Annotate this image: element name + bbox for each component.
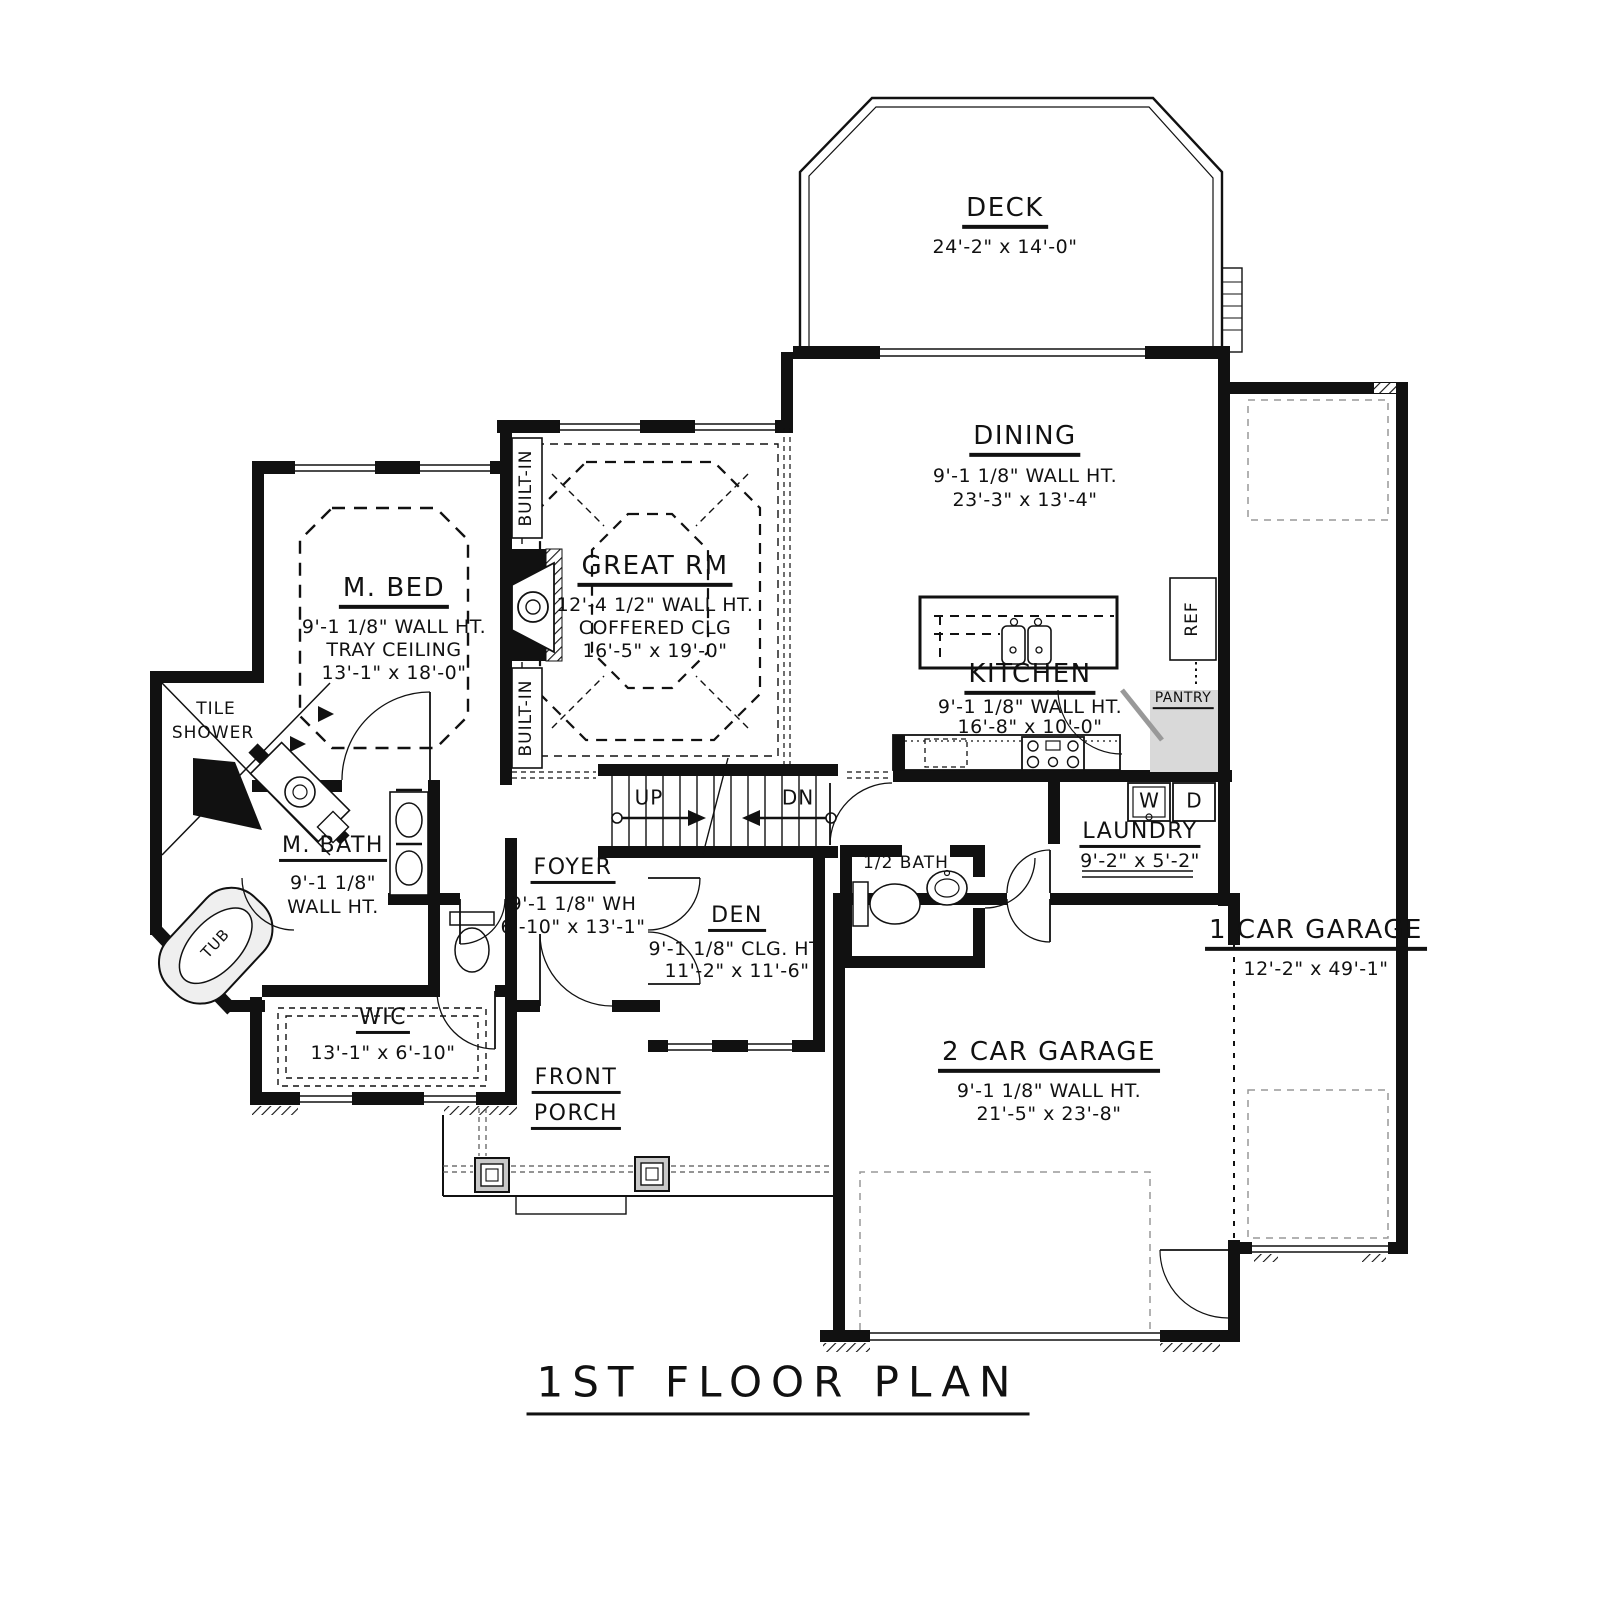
m-bath-label: M. BATH xyxy=(279,834,387,862)
wic-label: WIC xyxy=(356,1006,410,1034)
washer-label: W xyxy=(1139,791,1159,812)
kitchen-wall-height: 9'-1 1/8" WALL HT. xyxy=(938,698,1122,718)
den-dims: 11'-2" x 11'-6" xyxy=(665,962,810,982)
ref-label: REF xyxy=(1184,601,1202,636)
tile-shower-label-1: TILE xyxy=(196,701,236,719)
m-bath-wall-height-1: 9'-1 1/8" xyxy=(290,874,376,894)
foyer-wall-height: 9'-1 1/8" WH xyxy=(510,895,637,915)
laundry-dims: 9'-2" x 5'-2" xyxy=(1080,852,1200,872)
foyer-dims: 6'-10" x 13'-1" xyxy=(501,918,646,938)
two-car-garage-wall-height: 9'-1 1/8" WALL HT. xyxy=(957,1082,1141,1102)
m-bed-label: M. BED xyxy=(339,575,449,609)
porch-details xyxy=(443,1108,833,1214)
great-rm-label: GREAT RM xyxy=(577,553,732,587)
half-bath-label: 1/2 BATH xyxy=(863,855,949,873)
stairs-dn-label: DN xyxy=(782,788,814,809)
dining-wall-height: 9'-1 1/8" WALL HT. xyxy=(933,467,1117,487)
deck-dims: 24'-2" x 14'-0" xyxy=(933,238,1078,258)
one-car-garage-label: 1 CAR GARAGE xyxy=(1205,917,1427,951)
great-rm-dims: 16'-5" x 19'-0" xyxy=(583,642,728,662)
tile-shower-label-2: SHOWER xyxy=(172,725,254,743)
dining-label: DINING xyxy=(969,423,1080,457)
stairs-up-label: UP xyxy=(635,788,664,809)
great-rm-wall-height: 12'-4 1/2" WALL HT. xyxy=(557,596,754,616)
built-in-top-label: BUILT-IN xyxy=(518,450,536,527)
dryer-label: D xyxy=(1186,791,1201,812)
front-porch-label-2: PORCH xyxy=(531,1102,621,1130)
den-label: DEN xyxy=(708,904,766,932)
laundry-label: LAUNDRY xyxy=(1079,820,1200,848)
kitchen-dims: 16'-8" x 10'-0" xyxy=(958,718,1103,738)
m-bed-dims: 13'-1" x 18'-0" xyxy=(322,664,467,684)
den-ceiling-height: 9'-1 1/8" CLG. HT. xyxy=(649,940,826,960)
m-bed-ceiling: TRAY CEILING xyxy=(326,641,461,661)
page-title: 1ST FLOOR PLAN xyxy=(527,1360,1030,1415)
built-in-bottom-label: BUILT-IN xyxy=(518,680,536,757)
two-car-garage-label: 2 CAR GARAGE xyxy=(938,1039,1160,1073)
one-car-garage-dims: 12'-2" x 49'-1" xyxy=(1244,960,1389,980)
great-rm-ceiling: COFFERED CLG xyxy=(579,619,732,639)
pantry-label: PANTRY xyxy=(1153,691,1214,709)
dining-dims: 23'-3" x 13'-4" xyxy=(953,491,1098,511)
deck-label: DECK xyxy=(962,195,1048,229)
wic-dims: 13'-1" x 6'-10" xyxy=(311,1044,456,1064)
floor-plan: DECK 24'-2" x 14'-0" DINING 9'-1 1/8" WA… xyxy=(0,0,1600,1600)
front-porch-label-1: FRONT xyxy=(532,1066,621,1094)
m-bath-wall-height-2: WALL HT. xyxy=(287,898,379,918)
m-bed-wall-height: 9'-1 1/8" WALL HT. xyxy=(302,618,486,638)
two-car-garage-dims: 21'-5" x 23'-8" xyxy=(977,1105,1122,1125)
kitchen-label: KITCHEN xyxy=(964,661,1095,695)
foyer-label: FOYER xyxy=(531,856,616,884)
